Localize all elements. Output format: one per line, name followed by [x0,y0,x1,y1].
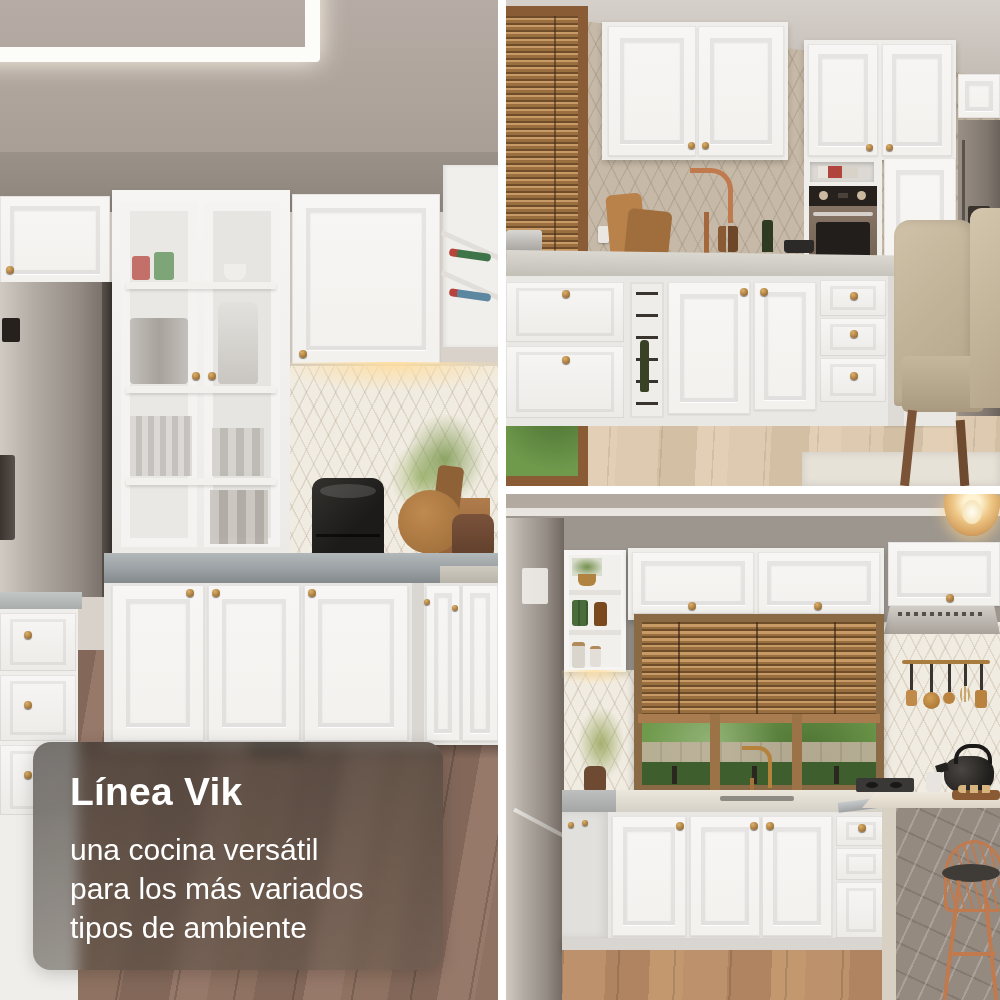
base-door [762,816,832,936]
blind-cord [756,622,758,722]
corner-base-door [462,585,498,741]
utensil-handle [964,664,967,686]
light-bulb [962,500,982,524]
photo-kitchen-oven-wall [506,0,1000,486]
base-door [208,585,300,741]
upper-door [882,44,952,156]
upper-cabinet-tall [804,40,956,160]
refrigerator-side-edge [102,282,112,597]
cabinet-shelf [126,478,276,485]
oven-handle [813,212,873,216]
refrigerator-control-panel [2,318,20,342]
shelf-divider [569,630,621,635]
photo-kitchen-glass-cabinet: Línea Vik una cocina versátil para los m… [0,0,498,1000]
base-cabinet-run [506,276,956,426]
countertop-gray-section [562,790,620,812]
glass-jar [590,646,601,667]
over-hood-cabinet [888,542,1000,606]
air-fryer-lid-highlight [320,484,376,498]
small-ladle [943,692,955,704]
olive-oil-bottle [762,220,773,252]
cabinet-shelf [126,282,276,289]
island-side-panel [882,808,896,1000]
upper-cabinet-right [292,194,440,364]
glass-display-cabinet [112,190,290,565]
drawer-stack [820,280,886,404]
shelf-divider [569,590,621,595]
stool-footring [948,952,996,956]
cabinet-knob [6,266,14,274]
stool-seat [942,864,1000,882]
black-saucepan [784,240,814,253]
rail-bar [902,660,990,664]
air-fryer [312,478,384,562]
open-shelf-unit [564,550,626,672]
green-bottles [572,600,588,626]
base-door [690,816,760,936]
utensil-handle [980,664,983,690]
dining-chair-second [970,208,1000,408]
range-hood [884,606,1000,634]
silver-cups [130,318,188,384]
cabinet-knob [562,356,570,364]
copper-faucet-stem [704,212,709,256]
utensil-rail [902,652,990,716]
cabinet-knob [850,330,858,338]
caption-line-1: una cocina versátil [70,830,413,869]
countertop [104,553,498,583]
pull-out-bottle-rack [630,282,664,418]
cabinet-knob [946,594,954,602]
copper-bar-stool [940,840,1000,1000]
upper-cabinet-double [602,22,788,160]
under-shelf-light-glow [562,670,628,686]
pepper-grinders [718,226,738,252]
portable-gas-cooktop [856,778,914,792]
caption-line-3: tipos de ambiente [70,908,413,947]
ceiling [506,494,1000,508]
oven-dial [857,191,866,200]
cabinet-knob [186,589,194,597]
base-door [612,816,686,936]
window-mullion [710,714,720,792]
slotted-spatula [906,690,917,706]
cabinet-knob [24,631,32,639]
red-mug [132,256,150,280]
cabinet-knob [850,372,858,380]
caption-title: Línea Vik [70,770,413,814]
cabinet-knob [212,589,220,597]
base-door [112,585,204,741]
cabinet-knob [582,820,588,826]
utensil-handle [910,664,913,690]
air-fryer-basket-seam [316,534,380,537]
window-sash-handle [672,766,677,784]
pendant-light [944,494,1000,536]
base-door [754,282,816,410]
wood-serving-tray [952,790,1000,800]
utensil-handle [948,664,951,692]
cabinet-knob [688,142,695,149]
window-mullion [792,714,802,792]
amber-bottle [594,602,607,626]
cabinet-knob [562,290,570,298]
cabinet-knob [208,372,216,380]
base-door [304,585,408,741]
upper-door [698,26,784,156]
white-mug [926,772,942,792]
green-mug [154,252,174,280]
glass-jar [572,642,585,668]
upper-door [808,44,878,156]
cabinet-knob [424,599,430,605]
cabinet-knob [702,142,709,149]
whisk [960,686,970,702]
upper-cabinet-row [628,548,884,620]
island-countertop [0,592,82,609]
hood-vent-slits [898,612,986,616]
blind-cord [678,622,680,722]
base-cabinet-run [562,812,886,938]
goblets [210,490,268,544]
upper-door [608,26,696,156]
over-fridge-cabinet [958,74,1000,118]
drawer [836,848,886,880]
island-drawer [0,613,76,671]
cabinet-knob [568,822,574,828]
base-door [668,282,750,414]
caption-card: Línea Vik una cocina versátil para los m… [33,742,443,970]
cabinet-knob [688,602,696,610]
wine-glasses [130,416,192,476]
cabinet-knob [452,605,458,611]
wood-floor [562,950,886,1000]
linea-vik-collage: { "caption": { "title": "Línea Vik", "li… [0,0,1000,1000]
crown-molding [506,508,1000,516]
plinth [562,938,886,950]
cabinet-knob [760,288,768,296]
glass-pitcher [218,302,258,384]
under-cabinet-light-glow [290,362,498,392]
cabinet-knob [886,144,893,151]
cabinet-knob [308,589,316,597]
cabinet-knob [192,372,200,380]
cabinet-knob [740,288,748,296]
brass-faucet [742,746,772,788]
cabinet-knob [858,824,866,832]
cabinet-knob [850,292,858,300]
cabinet-knob [766,822,774,830]
corner-return-panel [562,812,608,938]
skimmer [975,690,987,708]
cabinet-knob [814,602,822,610]
open-niche [810,162,874,182]
island-drawer [0,675,76,741]
biscuits [958,785,992,793]
cabinet-shelf [126,386,276,393]
corner-wine-rack [443,165,498,347]
blind-bottom-rail [638,714,880,723]
countertop-corner-return [440,566,498,583]
burner [890,782,902,788]
round-pan [923,692,940,709]
corner-stile [412,583,424,743]
cabinet-knob [676,822,684,830]
caption-line-2: para los más variados [70,869,413,908]
drawer [820,358,886,402]
fridge-energy-label [522,568,548,604]
refrigerator-dispenser [0,455,15,540]
blind-cord [834,622,836,722]
tumblers [212,428,264,476]
oven-display [838,193,848,198]
cabinet-knob [299,350,307,358]
base-cabinet-run [104,583,498,745]
kettle-handle [954,744,992,764]
utensil-handle [930,664,933,694]
window-sash-handle [834,766,839,784]
drawer-stack [836,814,886,938]
cabinet-knob [750,822,758,830]
cabinet-knob [24,701,32,709]
white-cup [224,264,246,280]
upper-cabinet-left [0,196,110,284]
recessed-ceiling-light [0,0,320,62]
gold-pot [578,574,596,586]
sink-rim [720,796,794,801]
burner [866,782,878,788]
drawer [836,882,886,938]
copper-faucet [690,168,733,223]
cabinet-knob [866,144,873,151]
cabinet-knob [24,771,32,779]
oven-dial [819,191,828,200]
photo-kitchen-window-island [506,494,1000,1000]
cookbooks [818,166,858,178]
wine-bottle [640,340,649,392]
